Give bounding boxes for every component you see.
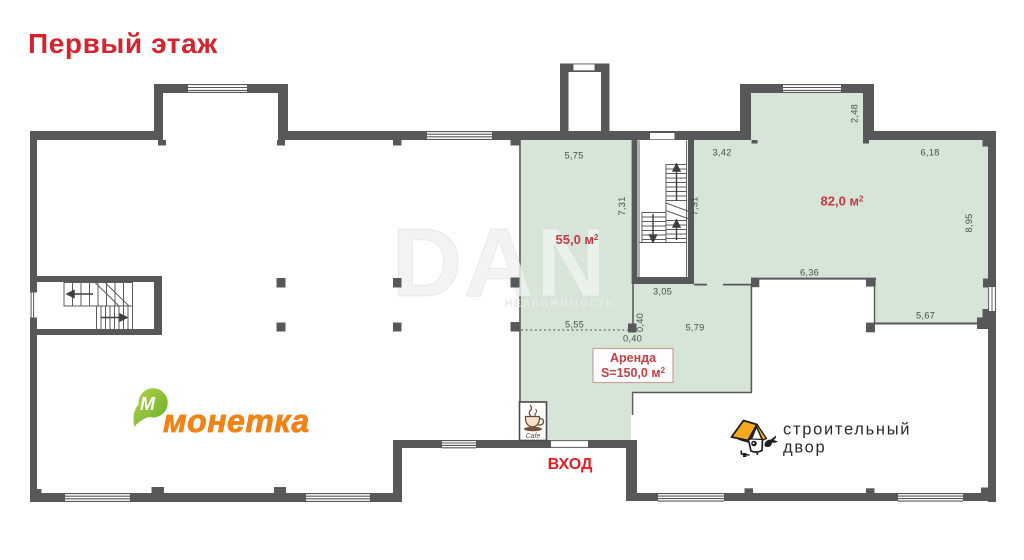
svg-text:строительный: строительный (783, 421, 911, 439)
svg-text:6,18: 6,18 (921, 148, 940, 158)
svg-text:ВХОД: ВХОД (548, 456, 593, 473)
svg-text:2,48: 2,48 (850, 104, 860, 123)
svg-text:двор: двор (783, 439, 826, 457)
svg-text:55,0 м2: 55,0 м2 (556, 232, 600, 247)
svg-text:S=150,0 м2: S=150,0 м2 (601, 366, 666, 380)
svg-text:8,95: 8,95 (964, 214, 974, 233)
svg-text:5,79: 5,79 (686, 323, 705, 333)
svg-text:3,05: 3,05 (653, 287, 672, 297)
svg-text:82,0 м2: 82,0 м2 (821, 194, 865, 209)
svg-text:5,67: 5,67 (916, 311, 935, 321)
svg-text:0,40: 0,40 (623, 334, 642, 344)
svg-text:7,31: 7,31 (690, 197, 700, 216)
svg-text:0,40: 0,40 (635, 313, 645, 332)
svg-text:6,36: 6,36 (800, 268, 819, 278)
svg-text:М: М (140, 394, 156, 414)
svg-text:Аренда: Аренда (610, 351, 657, 365)
svg-text:Cafe: Cafe (526, 433, 541, 440)
svg-text:5,55: 5,55 (565, 320, 584, 330)
svg-text:монетка: монетка (163, 403, 310, 439)
svg-text:5,75: 5,75 (565, 151, 584, 161)
svg-text:7,31: 7,31 (617, 197, 627, 216)
svg-text:3,42: 3,42 (713, 148, 732, 158)
svg-text:НЕДВИЖИМОСТЬ: НЕДВИЖИМОСТЬ (505, 298, 615, 310)
svg-text:Первый этаж: Первый этаж (28, 28, 218, 59)
